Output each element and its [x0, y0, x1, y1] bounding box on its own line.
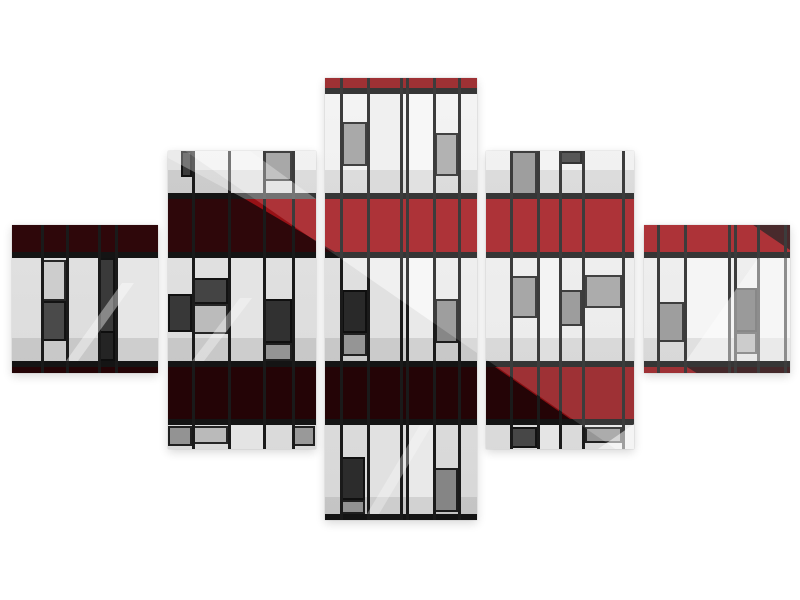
canvas-panel-2: [168, 151, 316, 449]
canvas-panel-4: [486, 151, 634, 449]
artwork-slice: [644, 225, 790, 373]
canvas-panels: [0, 0, 800, 600]
canvas-panel-5: [644, 225, 790, 373]
artwork-slice: [12, 225, 158, 373]
canvas-panel-3: [325, 78, 477, 520]
canvas-panel-1: [12, 225, 158, 373]
artwork-slice: [325, 78, 477, 520]
artwork-slice: [168, 151, 316, 449]
product-mockup: [0, 0, 800, 600]
artwork-slice: [486, 151, 634, 449]
